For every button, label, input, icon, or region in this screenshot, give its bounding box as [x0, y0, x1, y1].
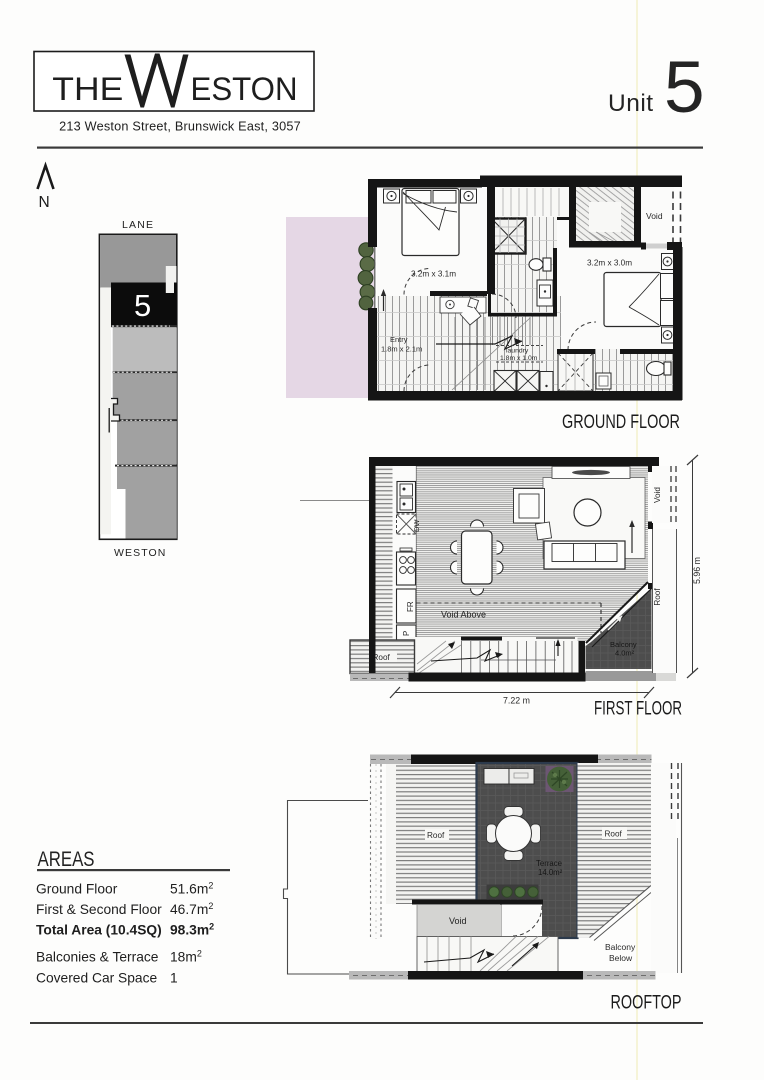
svg-text:98.3m2: 98.3m2	[170, 922, 214, 938]
svg-text:Entry: Entry	[390, 335, 408, 344]
svg-text:5: 5	[134, 288, 151, 323]
svg-text:213 Weston Street, Brunswick E: 213 Weston Street, Brunswick East, 3057	[59, 120, 301, 134]
svg-text:Roof: Roof	[427, 831, 445, 840]
svg-text:ESTON: ESTON	[191, 71, 298, 107]
svg-text:51.6m2: 51.6m2	[170, 881, 213, 897]
svg-text:Roof: Roof	[605, 830, 623, 839]
svg-text:AREAS: AREAS	[38, 847, 95, 871]
svg-text:Balcony: Balcony	[605, 942, 636, 952]
svg-text:FIRST FLOOR: FIRST FLOOR	[594, 699, 682, 720]
svg-text:Void: Void	[449, 916, 467, 926]
svg-text:4.0m²: 4.0m²	[615, 649, 635, 658]
svg-text:laundry: laundry	[506, 348, 529, 355]
svg-text:Below: Below	[609, 953, 633, 963]
svg-text:ROOFTOP: ROOFTOP	[611, 993, 682, 1014]
svg-text:N: N	[39, 194, 50, 211]
svg-text:Balconies & Terrace: Balconies & Terrace	[36, 950, 159, 965]
svg-text:1.8m x 2.1m: 1.8m x 2.1m	[381, 345, 422, 354]
svg-text:7.22 m: 7.22 m	[503, 696, 530, 706]
svg-text:Void: Void	[653, 487, 662, 503]
svg-text:1.8m x 1.0m: 1.8m x 1.0m	[500, 355, 538, 362]
svg-text:Void Above: Void Above	[441, 610, 486, 620]
svg-text:FR: FR	[406, 601, 415, 612]
svg-text:Void: Void	[646, 211, 663, 221]
svg-text:First & Second Floor: First & Second Floor	[36, 902, 162, 917]
svg-text:1: 1	[170, 971, 178, 986]
svg-text:46.7m2: 46.7m2	[170, 901, 213, 917]
svg-text:GROUND FLOOR: GROUND FLOOR	[562, 412, 680, 433]
svg-text:LANE: LANE	[122, 219, 154, 231]
svg-text:P: P	[402, 631, 411, 636]
svg-text:14.0m²: 14.0m²	[538, 868, 563, 877]
svg-text:Ground Floor: Ground Floor	[36, 882, 118, 897]
svg-text:3.2m x 3.1m: 3.2m x 3.1m	[411, 270, 456, 279]
svg-text:3.2m x 3.0m: 3.2m x 3.0m	[587, 259, 632, 268]
svg-text:DW: DW	[412, 519, 421, 532]
svg-text:Roof: Roof	[653, 588, 662, 606]
svg-text:Terrace: Terrace	[536, 859, 562, 868]
svg-text:5: 5	[664, 47, 705, 128]
svg-text:THE: THE	[52, 71, 123, 107]
svg-text:Unit: Unit	[608, 90, 654, 117]
svg-text:Total Area (10.4SQ): Total Area (10.4SQ)	[36, 923, 162, 938]
svg-text:5.96 m: 5.96 m	[692, 557, 702, 584]
svg-text:WESTON: WESTON	[114, 547, 167, 559]
svg-text:Covered Car Space: Covered Car Space	[36, 971, 157, 986]
